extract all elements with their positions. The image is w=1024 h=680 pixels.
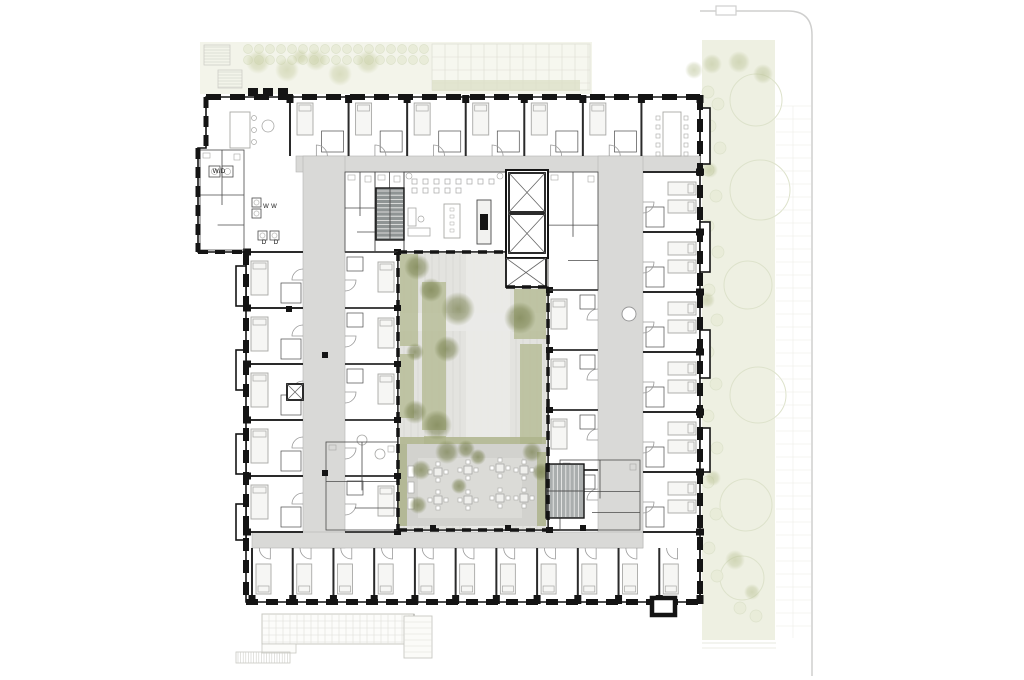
bed <box>251 317 268 351</box>
bush <box>305 49 327 71</box>
patio-table <box>520 494 528 502</box>
column <box>286 306 292 312</box>
shrub <box>710 378 722 390</box>
shrub <box>702 86 714 98</box>
column <box>322 470 328 476</box>
courtyard-tree <box>451 478 467 494</box>
patio-chair <box>436 490 440 494</box>
patio-chair <box>466 490 470 494</box>
courtyard-tree <box>435 440 459 464</box>
patio-chair <box>498 474 502 478</box>
courtyard-tree <box>434 336 460 362</box>
washer-dryer-label: W/D <box>213 168 226 175</box>
laundry-machine <box>252 198 261 207</box>
lounger <box>408 482 414 493</box>
courtyard-tree <box>411 460 431 480</box>
bed <box>473 103 489 135</box>
patio-table <box>520 466 528 474</box>
shrub <box>712 98 724 110</box>
column <box>322 352 328 358</box>
courtyard-tree <box>422 410 452 440</box>
shrub <box>332 45 341 54</box>
bed <box>378 486 394 516</box>
washer-1-label: W <box>263 204 269 210</box>
shrub <box>714 142 726 154</box>
bed <box>590 103 606 135</box>
patio-chair <box>466 506 470 510</box>
shrub <box>376 45 385 54</box>
patio-chair <box>474 468 478 472</box>
site-tree <box>725 550 745 570</box>
courtyard-tree <box>504 302 536 334</box>
patio-chair <box>444 470 448 474</box>
shrub <box>409 56 418 65</box>
bed <box>378 374 394 404</box>
bed <box>251 261 268 295</box>
washer-2-label: W <box>271 204 277 210</box>
shrub <box>420 45 429 54</box>
bed <box>251 485 268 519</box>
floor-plan-page: W/DWWDD <box>0 0 1024 680</box>
bed <box>551 419 567 449</box>
site-tree <box>702 54 722 74</box>
courtyard-tree <box>522 442 542 462</box>
shrub <box>703 542 715 554</box>
patio-chair <box>474 498 478 502</box>
patio-chair <box>522 504 526 508</box>
patio-chair <box>428 498 432 502</box>
bed <box>551 299 567 329</box>
bed <box>251 429 268 463</box>
patio-chair <box>522 476 526 480</box>
vent-shaft <box>652 598 675 615</box>
shrub <box>420 56 429 65</box>
shrub <box>266 45 275 54</box>
shrub <box>387 56 396 65</box>
shrub <box>398 45 407 54</box>
shrub <box>711 442 723 454</box>
patio-chair <box>436 506 440 510</box>
terrace-paving <box>262 614 414 644</box>
patio-chair <box>522 460 526 464</box>
bed <box>531 103 547 135</box>
shrub <box>734 602 746 614</box>
site-tree <box>744 584 760 600</box>
floor-plan-svg: W/DWWDD <box>0 0 1024 680</box>
shrub <box>277 45 286 54</box>
wall-post <box>696 529 704 536</box>
bed <box>378 262 394 292</box>
shrub <box>710 190 722 202</box>
hedge-row <box>432 80 580 91</box>
patio-chair <box>466 476 470 480</box>
bed <box>414 103 430 135</box>
communal-table <box>444 204 460 238</box>
patio-chair <box>490 496 494 500</box>
patio-chair <box>466 460 470 464</box>
courtyard-tree <box>409 496 427 514</box>
dryer-1-label: D <box>262 239 267 246</box>
property-notch <box>716 6 736 15</box>
shrub <box>711 570 723 582</box>
patio-chair <box>506 466 510 470</box>
patio-chair <box>436 462 440 466</box>
patio-chair <box>458 498 462 502</box>
column <box>430 525 436 531</box>
bush <box>356 50 380 74</box>
shrub <box>750 610 762 622</box>
courtyard-tree <box>404 254 430 280</box>
patio-table <box>496 464 504 472</box>
ramp <box>236 652 290 663</box>
patio-table <box>434 496 442 504</box>
patio-table <box>464 466 472 474</box>
site-tree <box>728 51 750 73</box>
patio-table <box>496 494 504 502</box>
patio-chair <box>514 496 518 500</box>
bed <box>551 359 567 389</box>
column <box>580 525 586 531</box>
wall-post <box>696 289 704 296</box>
site-tree <box>753 64 773 84</box>
patio-chair <box>514 468 518 472</box>
bed <box>356 103 372 135</box>
shrub <box>711 314 723 326</box>
window-bay <box>700 108 710 164</box>
patio-chair <box>498 504 502 508</box>
dining-table <box>663 112 681 156</box>
wall-post <box>462 95 469 103</box>
courtyard-tree <box>406 343 424 361</box>
courtyard-tree <box>441 292 475 326</box>
shrub <box>409 45 418 54</box>
patio-chair <box>444 498 448 502</box>
bed <box>297 103 313 135</box>
patio-chair <box>498 488 502 492</box>
corridor <box>598 156 643 548</box>
patio-chair <box>490 466 494 470</box>
site-tree <box>685 61 703 79</box>
bed <box>378 318 394 348</box>
bush <box>328 62 352 86</box>
kitchen-island <box>230 112 250 148</box>
servery-equipment <box>480 214 488 230</box>
dryer-2-label: D <box>274 239 279 246</box>
patio-chair <box>458 468 462 472</box>
courtyard-tree <box>419 278 443 302</box>
patio-chair <box>522 488 526 492</box>
corridor <box>252 532 643 548</box>
patio-chair <box>506 496 510 500</box>
corridor-table <box>622 307 636 321</box>
patio-chair <box>436 478 440 482</box>
shrub <box>712 246 724 258</box>
laundry-machine <box>252 209 261 218</box>
shrub <box>398 56 407 65</box>
courtyard <box>398 252 550 530</box>
column <box>505 525 511 531</box>
shrub <box>387 45 396 54</box>
courtyard-tree <box>470 449 486 465</box>
patio-table <box>434 468 442 476</box>
bush <box>292 49 308 65</box>
shrub <box>343 45 352 54</box>
bed <box>251 373 268 407</box>
shrub <box>710 508 722 520</box>
patio-chair <box>498 458 502 462</box>
wall-post <box>243 529 251 536</box>
patio-table <box>464 496 472 504</box>
bush <box>246 50 270 74</box>
patio-chair <box>530 496 534 500</box>
